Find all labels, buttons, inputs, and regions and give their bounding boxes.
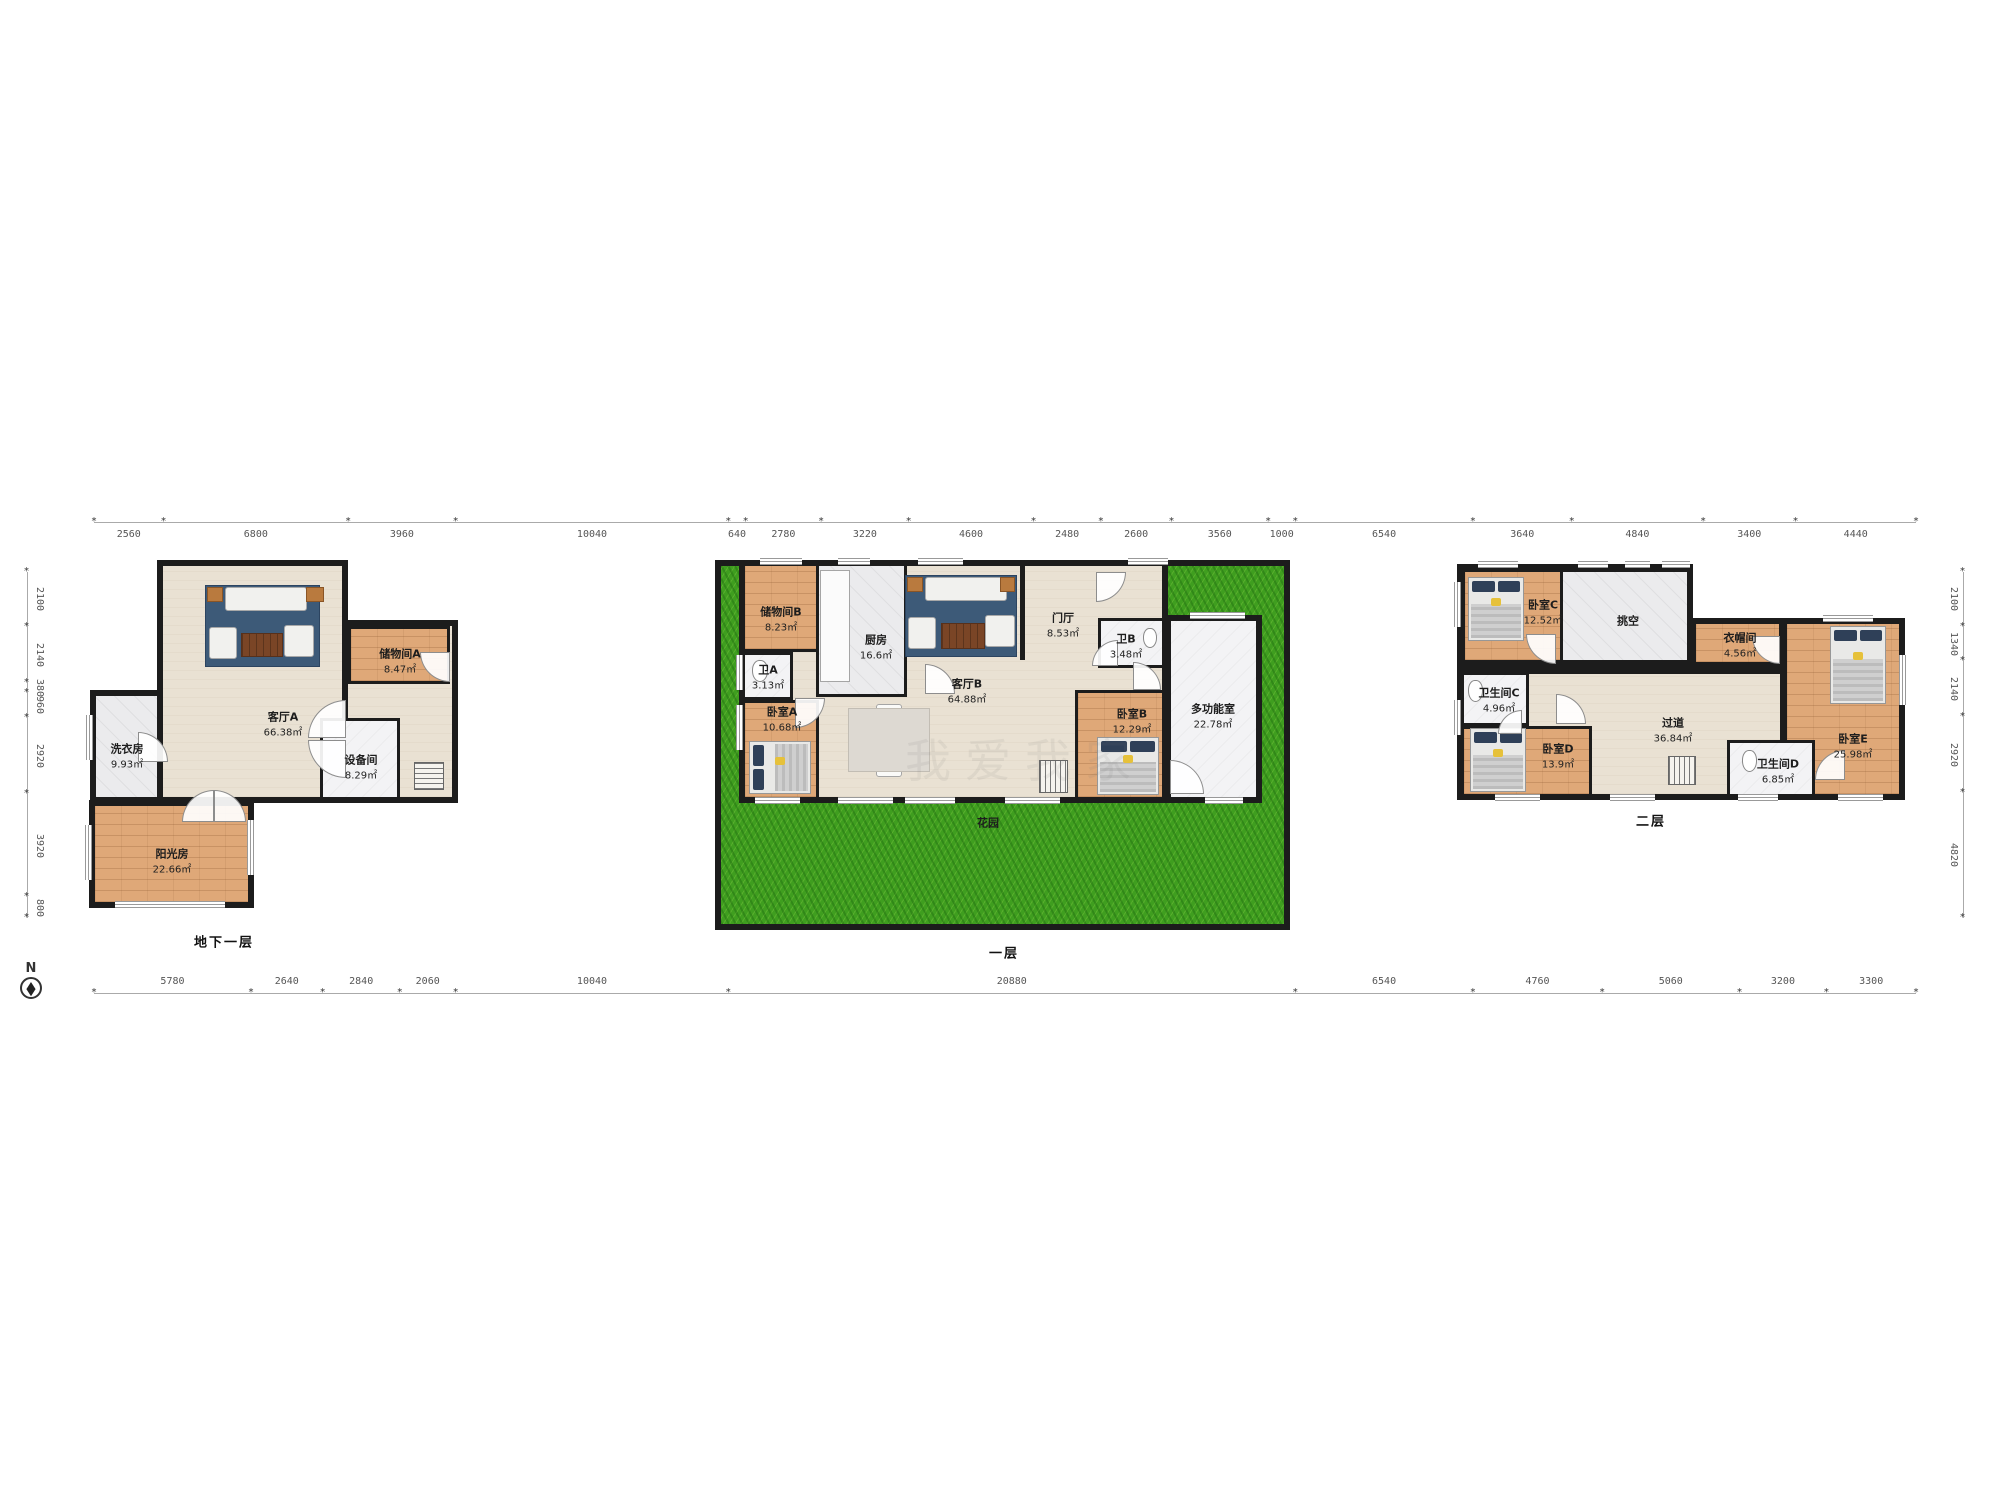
ruler-tick: * [92, 517, 97, 527]
room-label-bedroomD: 卧室D 13.9㎡ [1542, 741, 1574, 774]
ruler-tick: * [453, 517, 458, 527]
ruler-tick: * [24, 713, 29, 723]
ruler-dimension: 380 [34, 679, 45, 697]
ruler-dimension: 3960 [390, 529, 414, 540]
room-label-foyer: 门厅 8.53㎡ [1047, 610, 1079, 643]
ruler-tick: * [1266, 517, 1271, 527]
window [918, 558, 963, 565]
ruler-dimension: 640 [728, 529, 746, 540]
side-table [907, 577, 923, 592]
ruler-top: *2560*6800*3960*10040*640*2780*3220*4600… [94, 522, 1916, 523]
window [1823, 615, 1873, 622]
ruler-dimension: 2840 [349, 976, 373, 987]
ruler-dimension: 2780 [771, 529, 795, 540]
ruler-dimension: 3560 [1208, 529, 1232, 540]
ruler-tick: * [320, 988, 325, 998]
window [1128, 558, 1168, 565]
ruler-dimension: 6540 [1372, 976, 1396, 987]
room-label-bathD: 卫生间D 6.85㎡ [1757, 756, 1799, 789]
ruler-dimension: 20880 [997, 976, 1027, 987]
ruler-dimension: 4820 [1948, 843, 1959, 867]
coffee-table [241, 633, 283, 657]
ruler-dimension: 10040 [577, 976, 607, 987]
toilet [1742, 750, 1757, 772]
ruler-tick: * [24, 622, 29, 632]
ruler-dimension: 2140 [34, 643, 45, 667]
ruler-right: *2100*1340*2140*2920*4820* [1963, 572, 1964, 918]
ruler-tick: * [24, 789, 29, 799]
toilet [1143, 628, 1157, 648]
ruler-tick: * [1293, 988, 1298, 998]
bed-bedroomD [1470, 728, 1526, 792]
armchair [209, 627, 237, 659]
ruler-dimension: 5780 [160, 976, 184, 987]
ruler-dimension: 3400 [1737, 529, 1761, 540]
ruler-tick: * [24, 567, 29, 577]
floor-caption-second: 二层 [1636, 811, 1666, 830]
ruler-tick: * [1960, 656, 1965, 666]
ruler-dimension: 2060 [416, 976, 440, 987]
window [1478, 561, 1518, 568]
ruler-tick: * [1824, 988, 1829, 998]
ruler-tick: * [1470, 517, 1475, 527]
room-label-bedroomA: 卧室A 10.68㎡ [763, 704, 802, 737]
window [1190, 612, 1245, 619]
ruler-tick: * [1600, 988, 1605, 998]
stairs [1668, 756, 1696, 785]
window [1495, 794, 1540, 801]
window [736, 655, 743, 690]
ruler-dimension: 4440 [1844, 529, 1868, 540]
window [1005, 797, 1060, 804]
ruler-dimension: 1000 [1270, 529, 1294, 540]
ruler-tick: * [743, 517, 748, 527]
ruler-tick: * [1960, 622, 1965, 632]
ruler-tick: * [726, 988, 731, 998]
ruler-dimension: 2480 [1055, 529, 1079, 540]
room-label-bathA: 卫A 3.13㎡ [752, 662, 784, 695]
ruler-tick: * [1737, 988, 1742, 998]
window [838, 558, 870, 565]
ruler-dimension: 4760 [1525, 976, 1549, 987]
ruler-left: *2100*2140*380*960*2920*3920*800* [27, 572, 28, 918]
ruler-dimension: 4600 [959, 529, 983, 540]
window [1610, 794, 1655, 801]
room-label-corridor: 过道 36.84㎡ [1654, 715, 1693, 748]
window [1625, 561, 1650, 568]
armchair [985, 615, 1015, 647]
window [1899, 655, 1906, 705]
window [755, 797, 800, 804]
ruler-dimension: 3920 [34, 834, 45, 858]
ruler-tick: * [1960, 712, 1965, 722]
armchair [284, 625, 314, 657]
room-label-storageB: 储物间B 8.23㎡ [760, 604, 801, 637]
window [247, 820, 254, 875]
ruler-tick: * [906, 517, 911, 527]
floorplan-image: *2560*6800*3960*10040*640*2780*3220*4600… [0, 0, 2000, 1500]
window [115, 901, 225, 908]
side-table [1000, 577, 1015, 592]
ruler-dimension: 2100 [34, 587, 45, 611]
wall-foyer [1020, 563, 1025, 660]
room-label-cloak: 衣帽间 4.56㎡ [1724, 630, 1757, 663]
ruler-dimension: 800 [34, 898, 45, 916]
ruler-tick: * [24, 892, 29, 902]
north-compass: N ◆ [18, 962, 44, 999]
ruler-tick: * [1914, 517, 1919, 527]
ruler-dimension: 4840 [1625, 529, 1649, 540]
room-label-bathC: 卫生间C 4.96㎡ [1478, 685, 1519, 718]
sofa [925, 577, 1007, 601]
ruler-tick: * [24, 913, 29, 923]
side-table [207, 587, 223, 602]
ruler-tick: * [726, 517, 731, 527]
room-label-multifunction: 多功能室 22.78㎡ [1191, 701, 1235, 734]
ruler-dimension: 3640 [1510, 529, 1534, 540]
window [1838, 794, 1883, 801]
ruler-tick: * [819, 517, 824, 527]
window [1454, 582, 1461, 627]
ruler-dimension: 6800 [244, 529, 268, 540]
ruler-dimension: 2640 [275, 976, 299, 987]
window [1662, 561, 1690, 568]
armchair [908, 617, 936, 649]
ruler-tick: * [161, 517, 166, 527]
window [1578, 561, 1608, 568]
ruler-dimension: 2920 [34, 744, 45, 768]
ruler-tick: * [453, 988, 458, 998]
room-label-bedroomE: 卧室E 25.98㎡ [1834, 731, 1873, 764]
bed-bedroomA [749, 741, 811, 794]
ruler-dimension: 960 [34, 696, 45, 714]
ruler-bottom: *5780*2640*2840*2060*10040*20880*6540*47… [94, 993, 1916, 994]
room-label-void: 挑空 [1617, 612, 1639, 629]
ruler-dimension: 3300 [1859, 976, 1883, 987]
ruler-tick: * [92, 988, 97, 998]
window [838, 797, 893, 804]
kitchen-counter [820, 570, 850, 682]
side-table [306, 587, 324, 602]
window [760, 558, 802, 565]
room-label-bedroomC: 卧室C 12.52㎡ [1524, 597, 1563, 630]
ruler-tick: * [24, 688, 29, 698]
room-label-laundry: 洗衣房 9.93㎡ [111, 741, 144, 774]
room-label-livingA: 客厅A 66.38㎡ [264, 709, 303, 742]
ruler-tick: * [1793, 517, 1798, 527]
floor-caption-basement: 地下一层 [194, 932, 254, 951]
ruler-tick: * [1470, 988, 1475, 998]
ruler-tick: * [1569, 517, 1574, 527]
ruler-dimension: 2100 [1948, 587, 1959, 611]
ruler-tick: * [397, 988, 402, 998]
room-label-livingB: 客厅B 64.88㎡ [948, 676, 987, 709]
floor-caption-first: 一层 [989, 943, 1019, 962]
bed-bedroomC [1468, 577, 1524, 641]
window [85, 825, 92, 880]
room-label-kitchen: 厨房 16.6㎡ [860, 632, 892, 665]
ruler-tick: * [1960, 788, 1965, 798]
bed-bedroomB [1097, 737, 1159, 795]
room-label-storageA: 储物间A 8.47㎡ [379, 646, 421, 679]
ruler-dimension: 5060 [1659, 976, 1683, 987]
ruler-tick: * [1293, 517, 1298, 527]
window [1738, 794, 1778, 801]
room-label-equipment: 设备间 8.29㎡ [345, 752, 378, 785]
ruler-dimension: 3200 [1771, 976, 1795, 987]
dining-mat [848, 708, 930, 772]
ruler-dimension: 3220 [853, 529, 877, 540]
ruler-tick: * [1701, 517, 1706, 527]
north-label: N [18, 962, 44, 975]
room-label-sunroom: 阳光房 22.66㎡ [153, 846, 192, 879]
ruler-dimension: 6540 [1372, 529, 1396, 540]
room-label-bedroomB: 卧室B 12.29㎡ [1113, 706, 1152, 739]
ruler-tick: * [1098, 517, 1103, 527]
ruler-dimension: 2560 [117, 529, 141, 540]
window [1205, 797, 1243, 804]
room-label-bathB: 卫B 3.48㎡ [1110, 631, 1142, 664]
ruler-dimension: 1340 [1948, 632, 1959, 656]
compass-icon: ◆ [20, 977, 42, 999]
window [86, 715, 93, 760]
ruler-tick: * [1169, 517, 1174, 527]
sofa [225, 587, 307, 611]
ruler-dimension: 10040 [577, 529, 607, 540]
ruler-dimension: 2920 [1948, 743, 1959, 767]
coffee-table [941, 623, 985, 649]
ruler-tick: * [346, 517, 351, 527]
stairs [414, 762, 444, 790]
bed-bedroomE [1830, 626, 1886, 704]
window [905, 797, 955, 804]
window [736, 705, 743, 750]
ruler-tick: * [1960, 913, 1965, 923]
ruler-tick: * [1031, 517, 1036, 527]
room-label-garden: 花园 [977, 814, 999, 831]
ruler-tick: * [1960, 567, 1965, 577]
window [1454, 700, 1461, 735]
ruler-tick: * [248, 988, 253, 998]
ruler-dimension: 2140 [1948, 677, 1959, 701]
ruler-tick: * [1914, 988, 1919, 998]
ruler-dimension: 2600 [1124, 529, 1148, 540]
stairs [1039, 760, 1068, 793]
